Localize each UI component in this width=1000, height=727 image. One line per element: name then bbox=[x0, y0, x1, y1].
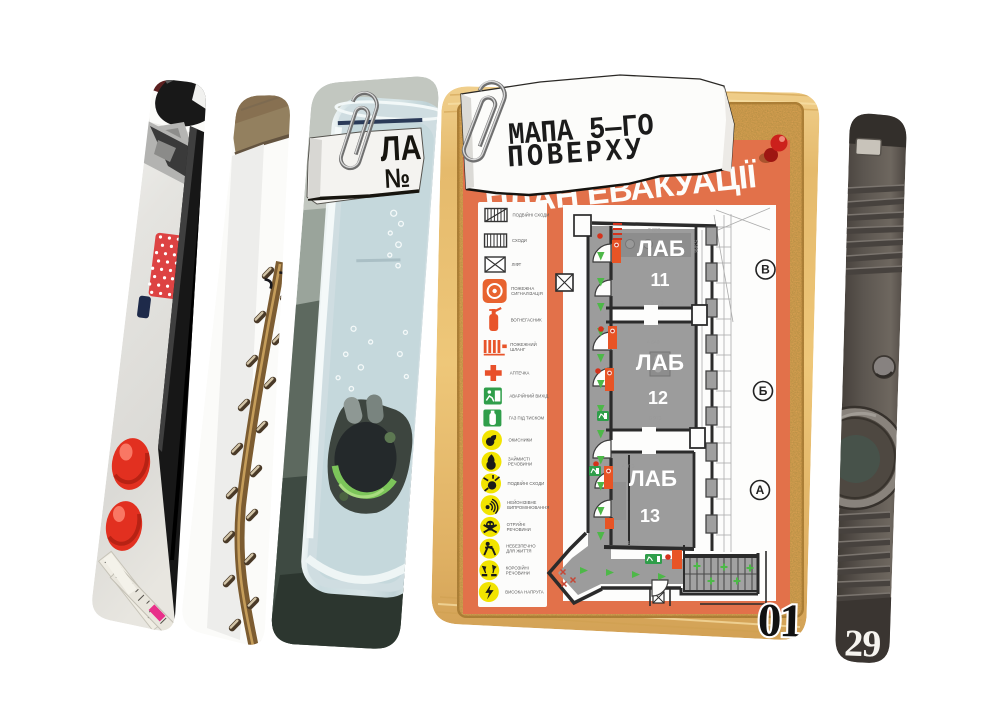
svg-text:ЛАБ: ЛАБ bbox=[637, 236, 685, 261]
svg-text:2 880: 2 880 bbox=[648, 228, 661, 234]
svg-text:11: 11 bbox=[650, 270, 669, 290]
svg-text:5 988: 5 988 bbox=[692, 240, 698, 253]
svg-text:4 640: 4 640 bbox=[647, 340, 660, 346]
svg-text:РЕЧОВИНИ: РЕЧОВИНИ bbox=[508, 462, 532, 467]
svg-text:ЛІФТ: ЛІФТ bbox=[512, 262, 522, 267]
svg-text:ВИПРОМІНЮВАННЯ: ВИПРОМІНЮВАННЯ bbox=[507, 505, 549, 510]
svg-text:АПТЕЧКА: АПТЕЧКА bbox=[510, 371, 530, 376]
svg-text:АВАРІЙНИЙ ВИХІД: АВАРІЙНИЙ ВИХІД bbox=[509, 394, 548, 399]
svg-text:№: № bbox=[384, 163, 411, 194]
svg-text:ОКИСНИКИ: ОКИСНИКИ bbox=[508, 438, 532, 443]
svg-text:13: 13 bbox=[640, 506, 660, 526]
svg-text:12: 12 bbox=[648, 388, 668, 408]
svg-text:29: 29 bbox=[844, 622, 881, 665]
svg-text:ВОГНЕГАСНИК: ВОГНЕГАСНИК bbox=[511, 318, 542, 323]
svg-text:ЛАБ: ЛАБ bbox=[636, 350, 684, 375]
svg-text:01: 01 bbox=[757, 594, 802, 647]
svg-text:4 988: 4 988 bbox=[627, 541, 640, 547]
svg-text:В: В bbox=[761, 263, 770, 277]
svg-text:ГАЗ ПІД ТИСКОМ: ГАЗ ПІД ТИСКОМ bbox=[509, 416, 545, 421]
svg-text:ПОДВІЙНІ СХОДИ: ПОДВІЙНІ СХОДИ bbox=[508, 481, 545, 486]
svg-text:СИГНАЛІЗАЦІЯ: СИГНАЛІЗАЦІЯ bbox=[511, 291, 543, 296]
svg-text:ШЛАНГ: ШЛАНГ bbox=[510, 347, 526, 352]
svg-text:6 973: 6 973 bbox=[649, 416, 662, 422]
svg-text:РЕЧОВИНИ: РЕЧОВИНИ bbox=[507, 527, 531, 532]
svg-text:ЛА: ЛА bbox=[379, 127, 422, 168]
svg-text:РЕЧОВИНИ: РЕЧОВИНИ bbox=[506, 570, 530, 575]
svg-text:ПОДВІЙНІ СХОДИ: ПОДВІЙНІ СХОДИ bbox=[513, 213, 550, 218]
svg-text:Б: Б bbox=[759, 384, 768, 398]
svg-text:6 973: 6 973 bbox=[651, 301, 664, 307]
svg-text:А: А bbox=[756, 483, 765, 497]
svg-text:СХОДИ: СХОДИ bbox=[512, 238, 527, 243]
svg-text:ЛАБ: ЛАБ bbox=[629, 466, 677, 491]
svg-text:ВИСОКА НАПРУГА: ВИСОКА НАПРУГА bbox=[505, 590, 543, 595]
svg-text:ДЛЯ ЖИТТЯ: ДЛЯ ЖИТТЯ bbox=[506, 549, 531, 554]
